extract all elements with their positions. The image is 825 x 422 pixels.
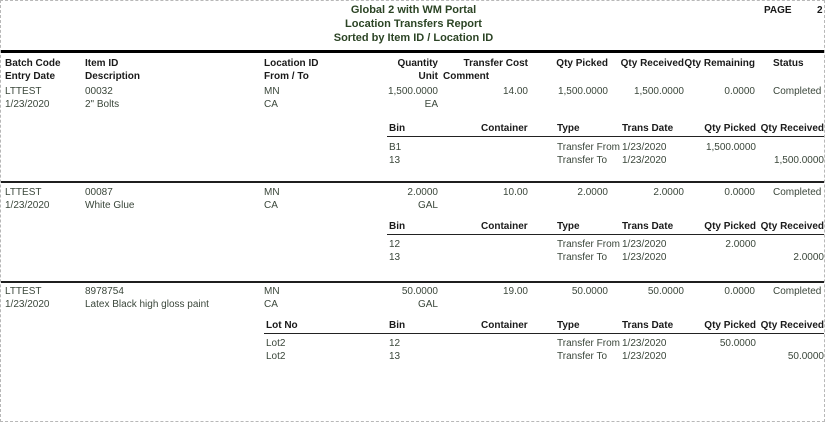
report-sort-line: Sorted by Item ID / Location ID — [1, 32, 825, 45]
dcol-type: Type — [557, 221, 580, 233]
type: Transfer To — [557, 252, 607, 264]
entry-date: 1/23/2020 — [5, 99, 50, 111]
item-id: 8978754 — [85, 286, 124, 298]
dcol-bin: Bin — [389, 123, 405, 135]
col-location-id: Location ID — [264, 58, 318, 70]
entry-date: 1/23/2020 — [5, 200, 50, 212]
qty-picked: 2.0000 — [725, 239, 756, 251]
trans-date: 1/23/2020 — [622, 351, 667, 363]
dcol-trans-date: Trans Date — [622, 123, 673, 135]
type: Transfer To — [557, 351, 607, 363]
qty-received: 1,500.0000 — [634, 86, 684, 98]
quantity: 1,500.0000 — [388, 86, 438, 98]
col-unit: Unit — [419, 71, 438, 83]
report-page: Global 2 with WM Portal Location Transfe… — [0, 0, 825, 422]
page-indicator: PAGE 2 — [1, 5, 825, 17]
transfer-cost: 14.00 — [503, 86, 528, 98]
block-separator — [1, 281, 825, 283]
bin: B1 — [389, 142, 401, 154]
transfer-cost: 10.00 — [503, 187, 528, 199]
unit: EA — [425, 99, 438, 111]
type: Transfer To — [557, 155, 607, 167]
transfer-row: LTTEST 00087 MN 2.0000 10.00 2.0000 2.00… — [1, 187, 825, 199]
qty-received: 2.0000 — [653, 187, 684, 199]
detail-header-row: Bin Container Type Trans Date Qty Picked… — [1, 221, 825, 233]
report-subtitle: Location Transfers Report — [1, 18, 825, 31]
entry-date: 1/23/2020 — [5, 299, 50, 311]
detail-row: Lot2 13 Transfer To 1/23/2020 50.0000 — [1, 351, 825, 363]
detail-header-row: Bin Container Type Trans Date Qty Picked… — [1, 123, 825, 135]
col-description: Description — [85, 71, 140, 83]
status: Completed — [773, 187, 821, 199]
qty-received: 2.0000 — [793, 252, 824, 264]
dcol-container: Container — [481, 221, 528, 233]
detail-row: 13 Transfer To 1/23/2020 2.0000 — [1, 252, 825, 264]
transfer-row-line2: 1/23/2020 White Glue CA GAL — [1, 200, 825, 212]
batch-code: LTTEST — [5, 86, 41, 98]
detail-row: 13 Transfer To 1/23/2020 1,500.0000 — [1, 155, 825, 167]
detail-header-rule — [387, 136, 825, 137]
item-id: 00087 — [85, 187, 113, 199]
quantity: 2.0000 — [407, 187, 438, 199]
trans-date: 1/23/2020 — [622, 338, 667, 350]
page-number: 2 — [817, 5, 823, 17]
qty-picked: 2.0000 — [577, 187, 608, 199]
status: Completed — [773, 286, 821, 298]
transfer-cost: 19.00 — [503, 286, 528, 298]
description: 2" Bolts — [85, 99, 119, 111]
qty-picked: 50.0000 — [720, 338, 756, 350]
description: White Glue — [85, 200, 134, 212]
location-to: CA — [264, 299, 278, 311]
location-from: MN — [264, 187, 280, 199]
dcol-trans-date: Trans Date — [622, 320, 673, 332]
qty-picked: 50.0000 — [572, 286, 608, 298]
batch-code: LTTEST — [5, 286, 41, 298]
lot-no: Lot2 — [266, 338, 285, 350]
qty-remaining: 0.0000 — [724, 86, 755, 98]
bin: 12 — [389, 239, 400, 251]
qty-remaining: 0.0000 — [724, 286, 755, 298]
col-comment: Comment — [443, 71, 489, 83]
dcol-lot-no: Lot No — [266, 320, 298, 332]
dcol-qty-received: Qty Received — [761, 221, 824, 233]
col-item-id: Item ID — [85, 58, 118, 70]
dcol-bin: Bin — [389, 221, 405, 233]
transfer-row-line2: 1/23/2020 Latex Black high gloss paint C… — [1, 299, 825, 311]
unit: GAL — [418, 200, 438, 212]
trans-date: 1/23/2020 — [622, 155, 667, 167]
qty-picked: 1,500.0000 — [706, 142, 756, 154]
dcol-container: Container — [481, 320, 528, 332]
location-from: MN — [264, 286, 280, 298]
qty-remaining: 0.0000 — [724, 187, 755, 199]
dcol-qty-picked: Qty Picked — [704, 320, 756, 332]
transfer-row: LTTEST 00032 MN 1,500.0000 14.00 1,500.0… — [1, 86, 825, 98]
dcol-qty-picked: Qty Picked — [704, 123, 756, 135]
col-batch-code: Batch Code — [5, 58, 61, 70]
type: Transfer From — [557, 142, 620, 154]
col-from-to: From / To — [264, 71, 309, 83]
dcol-qty-picked: Qty Picked — [704, 221, 756, 233]
block-separator — [1, 181, 825, 183]
location-to: CA — [264, 99, 278, 111]
bin: 12 — [389, 338, 400, 350]
qty-received: 50.0000 — [648, 286, 684, 298]
dcol-type: Type — [557, 320, 580, 332]
bin: 13 — [389, 155, 400, 167]
qty-picked: 1,500.0000 — [558, 86, 608, 98]
trans-date: 1/23/2020 — [622, 239, 667, 251]
lot-no: Lot2 — [266, 351, 285, 363]
detail-header-rule — [264, 333, 825, 334]
bin: 13 — [389, 351, 400, 363]
col-transfer-cost: Transfer Cost — [464, 58, 528, 70]
col-entry-date: Entry Date — [5, 71, 55, 83]
trans-date: 1/23/2020 — [622, 142, 667, 154]
transfer-row-line2: 1/23/2020 2" Bolts CA EA — [1, 99, 825, 111]
trans-date: 1/23/2020 — [622, 252, 667, 264]
bin: 13 — [389, 252, 400, 264]
description: Latex Black high gloss paint — [85, 299, 209, 311]
detail-row: 12 Transfer From 1/23/2020 2.0000 — [1, 239, 825, 251]
detail-row: Lot2 12 Transfer From 1/23/2020 50.0000 — [1, 338, 825, 350]
dcol-type: Type — [557, 123, 580, 135]
unit: GAL — [418, 299, 438, 311]
dcol-container: Container — [481, 123, 528, 135]
detail-header-row: Lot No Bin Container Type Trans Date Qty… — [1, 320, 825, 332]
dcol-bin: Bin — [389, 320, 405, 332]
type: Transfer From — [557, 239, 620, 251]
dcol-trans-date: Trans Date — [622, 221, 673, 233]
location-from: MN — [264, 86, 280, 98]
qty-received: 50.0000 — [788, 351, 824, 363]
col-status: Status — [773, 58, 804, 70]
header-rule — [1, 50, 825, 53]
quantity: 50.0000 — [402, 286, 438, 298]
column-header-row-2: Entry Date Description From / To Unit Co… — [1, 71, 825, 83]
detail-header-rule — [387, 234, 825, 235]
col-qty-remaining: Qty Remaining — [684, 58, 755, 70]
batch-code: LTTEST — [5, 187, 41, 199]
detail-row: B1 Transfer From 1/23/2020 1,500.0000 — [1, 142, 825, 154]
col-quantity: Quantity — [397, 58, 438, 70]
qty-received: 1,500.0000 — [774, 155, 824, 167]
item-id: 00032 — [85, 86, 113, 98]
transfer-row: LTTEST 8978754 MN 50.0000 19.00 50.0000 … — [1, 286, 825, 298]
col-qty-received: Qty Received — [621, 58, 684, 70]
location-to: CA — [264, 200, 278, 212]
col-qty-picked: Qty Picked — [556, 58, 608, 70]
dcol-qty-received: Qty Received — [761, 123, 824, 135]
status: Completed — [773, 86, 821, 98]
column-header-row-1: Batch Code Item ID Location ID Quantity … — [1, 58, 825, 70]
page-label: PAGE — [764, 5, 792, 17]
dcol-qty-received: Qty Received — [761, 320, 824, 332]
type: Transfer From — [557, 338, 620, 350]
